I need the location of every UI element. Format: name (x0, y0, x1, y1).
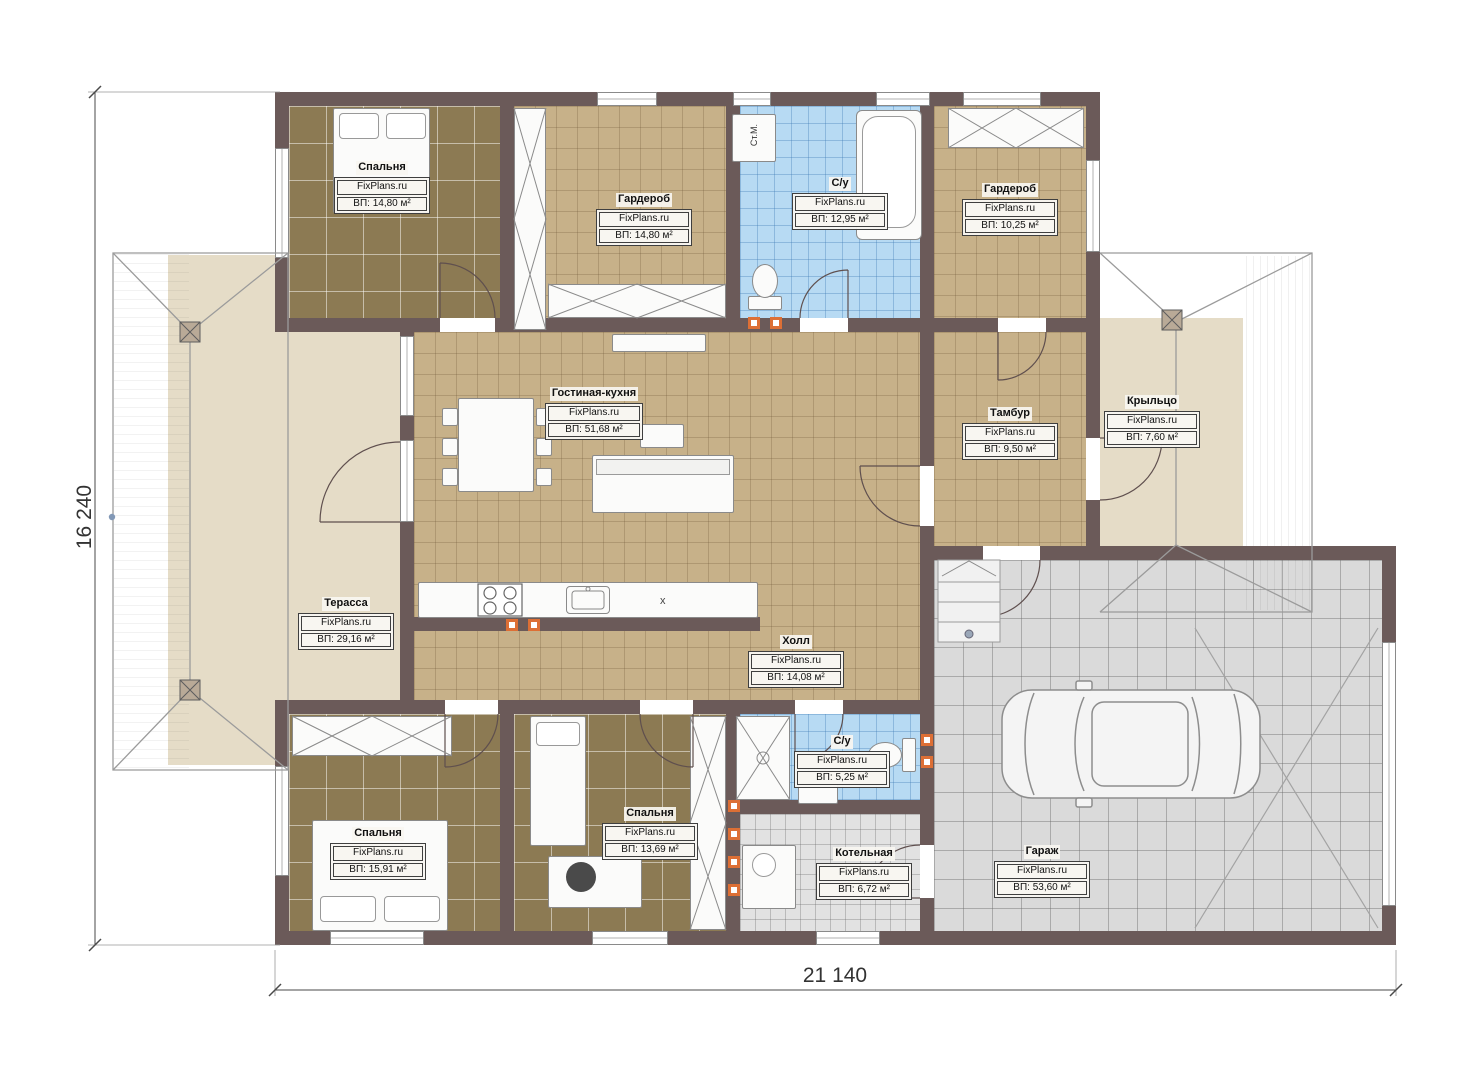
room-brand: FixPlans.ru (333, 846, 423, 861)
shower-icon (736, 716, 790, 800)
room-name: С/у (831, 735, 852, 749)
room-label-tambur: Тамбур FixPlans.ru ВП: 9,50 м² (962, 402, 1058, 460)
room-area: ВП: 29,16 м² (301, 633, 391, 648)
outlet-icon (728, 856, 740, 868)
room-brand: FixPlans.ru (797, 754, 887, 769)
room-name: Тамбур (988, 407, 1032, 421)
room-brand: FixPlans.ru (1107, 414, 1197, 429)
plan-graphics: x (0, 0, 1474, 1080)
room-label-bedroom-bl: Спальня FixPlans.ru ВП: 15,91 м² (330, 822, 426, 880)
room-brand: FixPlans.ru (599, 212, 689, 227)
room-area: ВП: 15,91 м² (333, 863, 423, 878)
room-brand: FixPlans.ru (965, 426, 1055, 441)
room-label-bathroom-bottom: С/у FixPlans.ru ВП: 5,25 м² (794, 730, 890, 788)
room-name: Гардероб (982, 183, 1038, 197)
car-icon (1002, 681, 1260, 807)
room-brand: FixPlans.ru (819, 866, 909, 881)
room-area: ВП: 13,69 м² (605, 843, 695, 858)
room-area: ВП: 53,60 м² (997, 881, 1087, 896)
room-name: Гараж (1024, 845, 1061, 859)
room-plate: FixPlans.ru ВП: 10,25 м² (962, 199, 1058, 236)
room-name: Котельная (833, 847, 895, 861)
room-label-bedroom-top: Спальня FixPlans.ru ВП: 14,80 м² (334, 156, 430, 214)
room-name: Крыльцо (1125, 395, 1179, 409)
room-label-wardrobe-1: Гардероб FixPlans.ru ВП: 14,80 м² (596, 188, 692, 246)
room-area: ВП: 12,95 м² (795, 213, 885, 228)
room-brand: FixPlans.ru (605, 826, 695, 841)
room-name: Спальня (356, 161, 408, 175)
room-label-bedroom-bm: Спальня FixPlans.ru ВП: 13,69 м² (602, 802, 698, 860)
room-name: Холл (780, 635, 812, 649)
room-brand: FixPlans.ru (337, 180, 427, 195)
room-area: ВП: 5,25 м² (797, 771, 887, 786)
outlet-icon (728, 828, 740, 840)
room-plate: FixPlans.ru ВП: 14,08 м² (748, 651, 844, 688)
room-area: ВП: 10,25 м² (965, 219, 1055, 234)
room-label-garage: Гараж FixPlans.ru ВП: 53,60 м² (994, 840, 1090, 898)
sink-icon (572, 587, 604, 609)
outlet-icon (728, 884, 740, 896)
room-brand: FixPlans.ru (751, 654, 841, 669)
room-area: ВП: 14,08 м² (751, 671, 841, 686)
room-brand: FixPlans.ru (548, 406, 640, 421)
room-plate: FixPlans.ru ВП: 51,68 м² (545, 403, 643, 440)
room-label-wardrobe-2: Гардероб FixPlans.ru ВП: 10,25 м² (962, 178, 1058, 236)
outlet-icon (770, 317, 782, 329)
outlet-icon (921, 734, 933, 746)
dimension-width: 21 140 (780, 964, 890, 988)
floor-plan: Ст.М. (0, 0, 1474, 1080)
washing-machine-label: Ст.М. (749, 117, 759, 153)
room-plate: FixPlans.ru ВП: 14,80 м² (334, 177, 430, 214)
room-label-hall: Холл FixPlans.ru ВП: 14,08 м² (748, 630, 844, 688)
room-area: ВП: 7,60 м² (1107, 431, 1197, 446)
room-name: Спальня (624, 807, 676, 821)
room-plate: FixPlans.ru ВП: 6,72 м² (816, 863, 912, 900)
room-name: Гардероб (616, 193, 672, 207)
outlet-icon (748, 317, 760, 329)
room-plate: FixPlans.ru ВП: 13,69 м² (602, 823, 698, 860)
room-plate: FixPlans.ru ВП: 7,60 м² (1104, 411, 1200, 448)
room-brand: FixPlans.ru (965, 202, 1055, 217)
room-area: ВП: 9,50 м² (965, 443, 1055, 458)
outlet-icon (506, 619, 518, 631)
room-name: С/у (829, 177, 850, 191)
room-label-porch: Крыльцо FixPlans.ru ВП: 7,60 м² (1104, 390, 1200, 448)
room-brand: FixPlans.ru (997, 864, 1087, 879)
room-label-bathroom-top: С/у FixPlans.ru ВП: 12,95 м² (792, 172, 888, 230)
room-plate: FixPlans.ru ВП: 5,25 м² (794, 751, 890, 788)
room-brand: FixPlans.ru (301, 616, 391, 631)
room-plate: FixPlans.ru ВП: 53,60 м² (994, 861, 1090, 898)
room-label-terrace: Терасса FixPlans.ru ВП: 29,16 м² (298, 592, 394, 650)
room-area: ВП: 14,80 м² (337, 197, 427, 212)
room-name: Спальня (352, 827, 404, 841)
outlet-icon (728, 800, 740, 812)
room-plate: FixPlans.ru ВП: 15,91 м² (330, 843, 426, 880)
dimension-lines (88, 86, 1402, 996)
room-plate: FixPlans.ru ВП: 12,95 м² (792, 193, 888, 230)
room-plate: FixPlans.ru ВП: 29,16 м² (298, 613, 394, 650)
door-swing-icon (320, 263, 1162, 898)
stove-icon (478, 584, 522, 616)
outlet-icon (528, 619, 540, 631)
room-name: Гостиная-кухня (550, 387, 638, 401)
room-plate: FixPlans.ru ВП: 9,50 м² (962, 423, 1058, 460)
room-plate: FixPlans.ru ВП: 14,80 м² (596, 209, 692, 246)
outlet-icon (921, 756, 933, 768)
kitchen-marker: x (660, 595, 666, 607)
room-brand: FixPlans.ru (795, 196, 885, 211)
room-area: ВП: 51,68 м² (548, 423, 640, 438)
dimension-height: 16 240 (73, 462, 97, 572)
room-label-living-kitchen: Гостиная-кухня FixPlans.ru ВП: 51,68 м² (534, 382, 654, 440)
room-area: ВП: 6,72 м² (819, 883, 909, 898)
stairs-icon (938, 560, 1000, 642)
room-name: Терасса (322, 597, 370, 611)
room-area: ВП: 14,80 м² (599, 229, 689, 244)
room-label-boiler: Котельная FixPlans.ru ВП: 6,72 м² (816, 842, 912, 900)
